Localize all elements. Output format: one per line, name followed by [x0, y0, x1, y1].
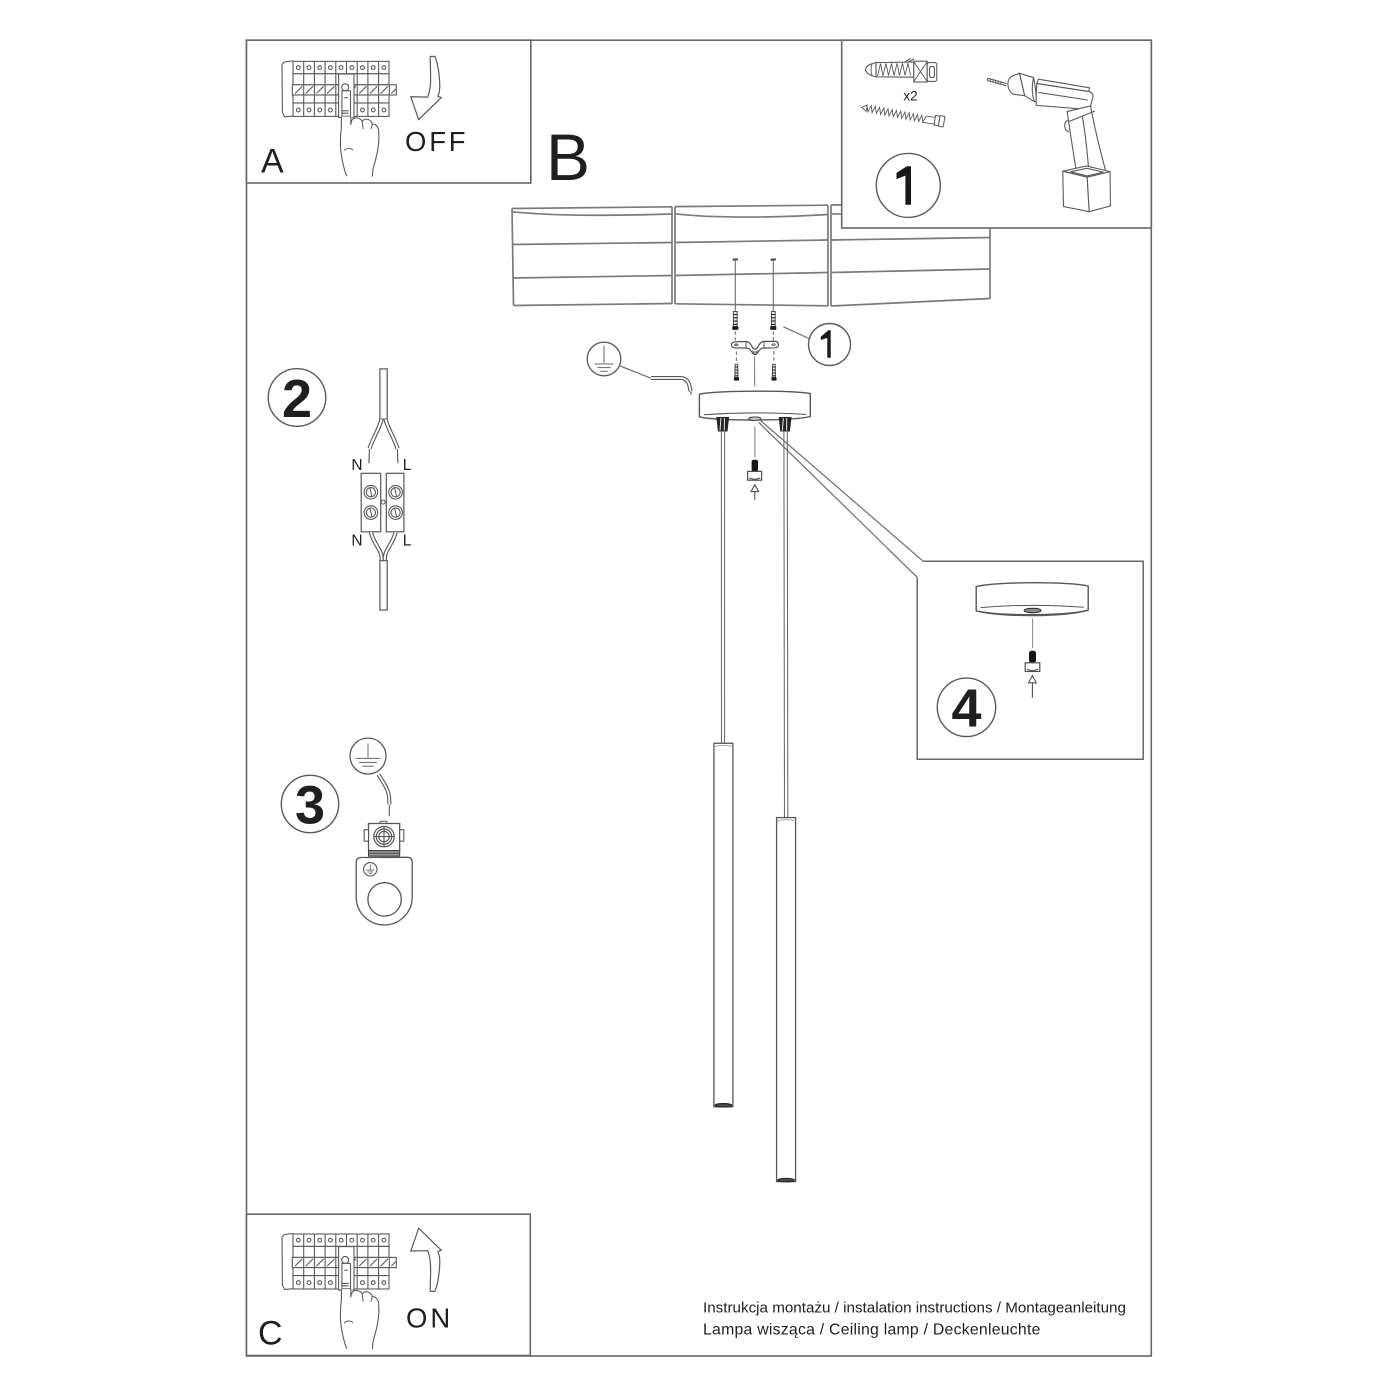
svg-text:4: 4	[951, 679, 981, 739]
svg-text:Instrukcja montażu / instalati: Instrukcja montażu / instalation instruc…	[703, 1300, 1126, 1317]
svg-text:L: L	[403, 533, 412, 550]
svg-text:A: A	[261, 142, 284, 180]
svg-text:N: N	[351, 457, 362, 474]
svg-text:C: C	[258, 1315, 283, 1353]
svg-text:ON: ON	[406, 1303, 453, 1334]
svg-text:Lampa wisząca / Ceiling lamp /: Lampa wisząca / Ceiling lamp / Deckenleu…	[703, 1322, 1041, 1339]
svg-text:B: B	[546, 120, 590, 194]
svg-text:2: 2	[282, 369, 312, 429]
svg-text:N: N	[351, 533, 362, 550]
svg-text:3: 3	[295, 776, 325, 836]
svg-text:x2: x2	[903, 89, 917, 104]
svg-text:L: L	[403, 457, 412, 474]
svg-text:OFF: OFF	[405, 126, 468, 157]
